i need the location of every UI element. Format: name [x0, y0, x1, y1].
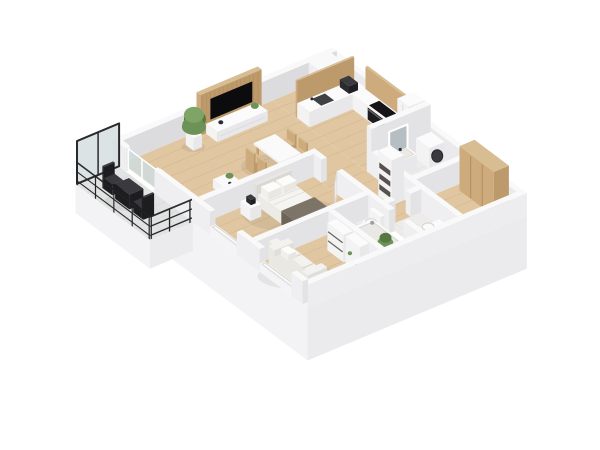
floor-plant: [181, 107, 206, 152]
shelf-niche: [378, 145, 404, 205]
floor-plan-render: [0, 0, 600, 450]
floor-plan-stage: [0, 0, 600, 450]
